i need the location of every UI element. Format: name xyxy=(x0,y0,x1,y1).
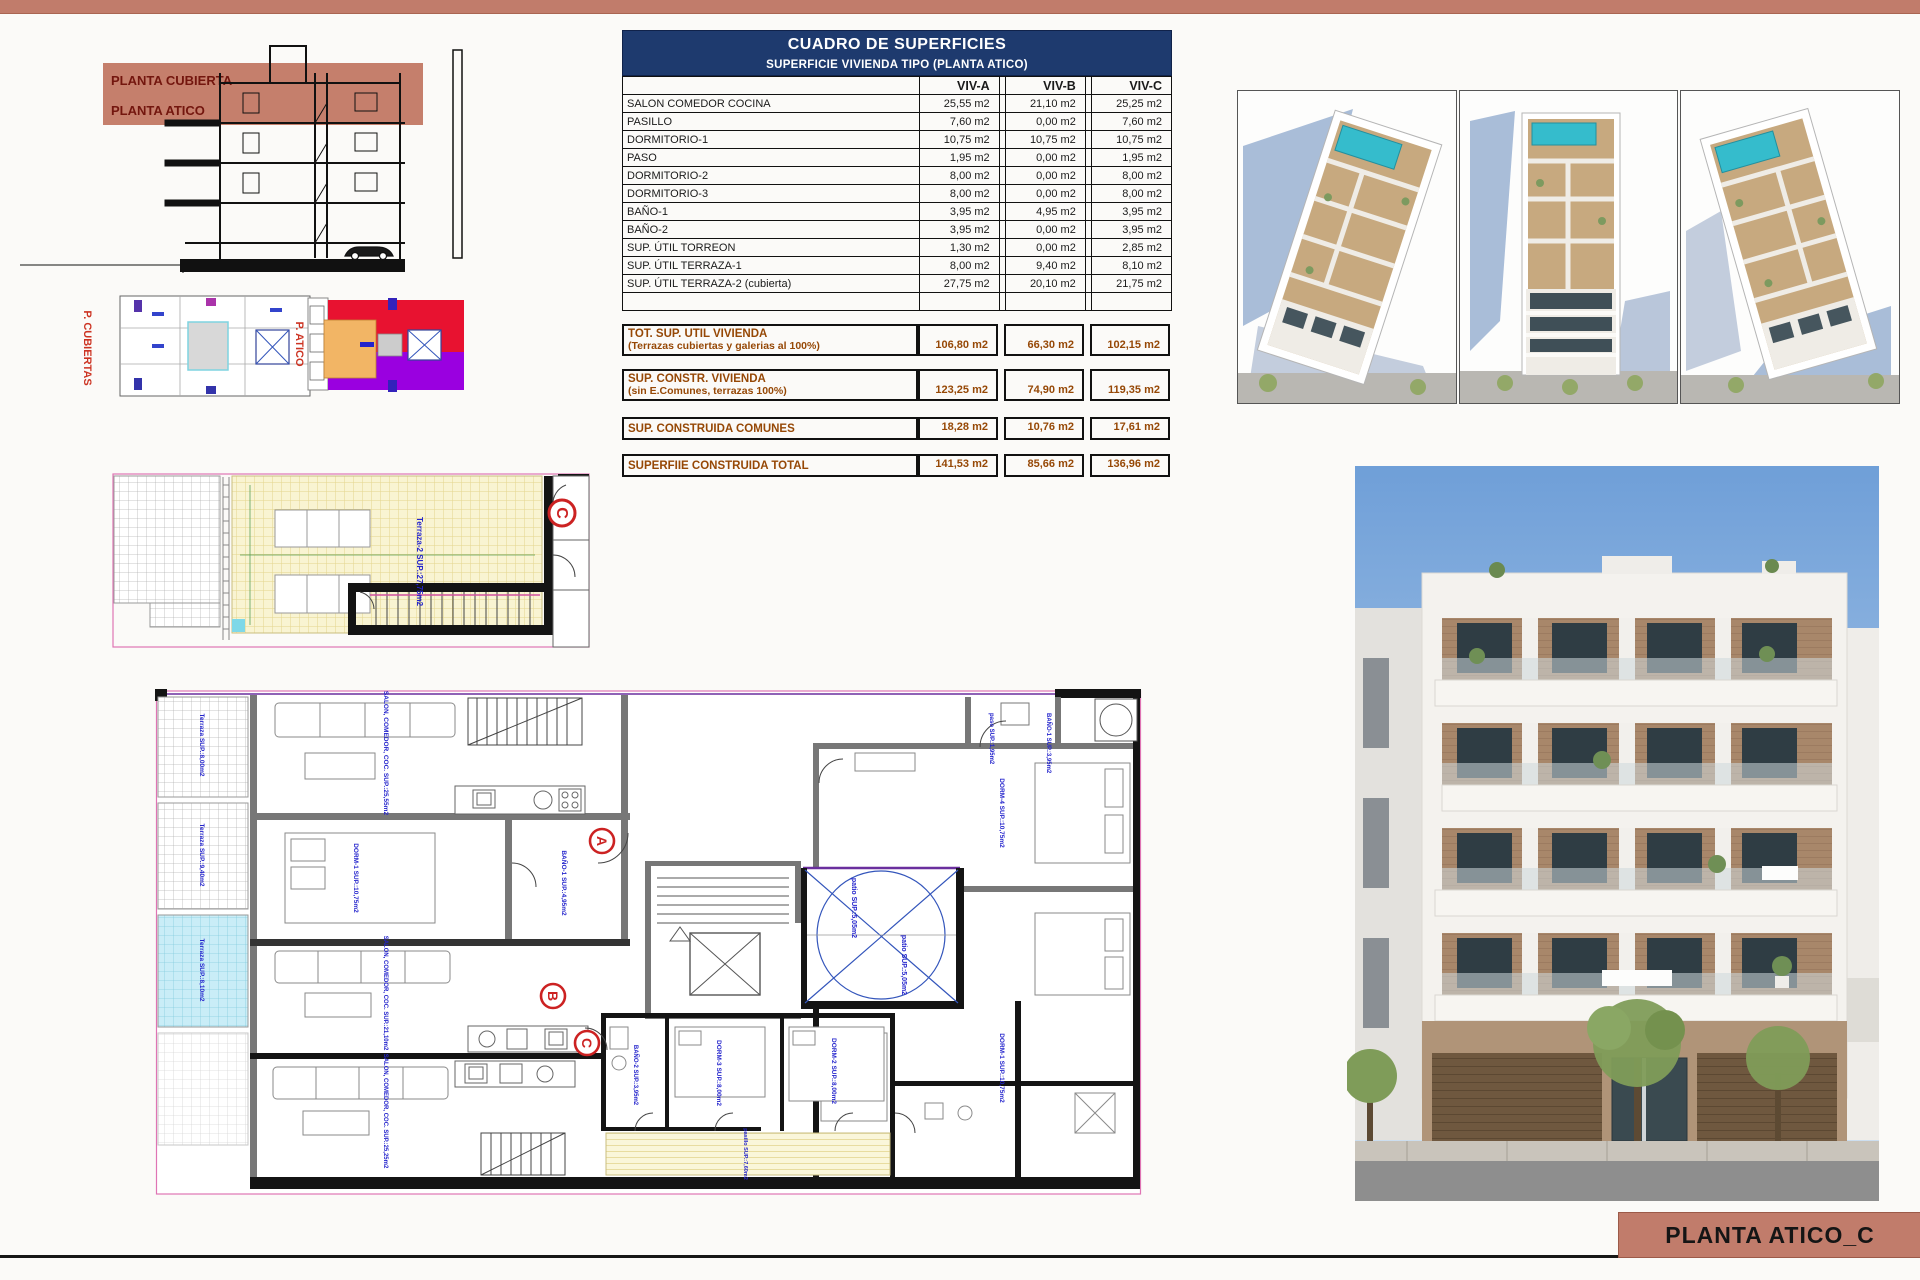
svg-text:DORM-1 SUP.:10,75m2: DORM-1 SUP.:10,75m2 xyxy=(998,1033,1005,1103)
marker-c: C xyxy=(575,1031,599,1055)
svg-text:pasillo SUP.:7,60m2: pasillo SUP.:7,60m2 xyxy=(742,1128,748,1180)
terrace-label: Terraza SUP.:9,40m2 xyxy=(198,824,205,887)
patio-label: patio SUP.:5,05m2 xyxy=(850,878,857,938)
total-row-constr: SUP. CONSTR. VIVIENDA (sin E.Comunes, te… xyxy=(622,369,1172,401)
surface-data-table: VIV-A VIV-B VIV-C SALON COMEDOR COCINA25… xyxy=(622,76,1172,311)
svg-text:B: B xyxy=(545,991,561,1001)
surface-table-subtitle: SUPERFICIE VIVIENDA TIPO (PLANTA ATICO) xyxy=(623,59,1171,71)
aerial-renders xyxy=(1237,90,1900,404)
neighbor-windows xyxy=(1363,658,1389,1028)
keyplan-right-label: P. ATICO xyxy=(293,321,305,366)
roof-gray-terrace xyxy=(114,476,220,627)
table-row: BAÑO-23,95 m20,00 m23,95 m2 xyxy=(623,221,1172,239)
total-row-total: SUPERFIIE CONSTRUIDA TOTAL 141,53 m2 85,… xyxy=(622,454,1172,477)
svg-text:DORM-4 SUP.:10,75m2: DORM-4 SUP.:10,75m2 xyxy=(998,778,1005,848)
roof-terrace-plan: C Terraza-2 SUP.:27,75m2 xyxy=(110,455,595,695)
section-label-atico: PLANTA ATICO xyxy=(111,103,205,118)
keyplan-atico xyxy=(308,298,464,392)
building-section-drawing: PLANTA CUBIERTA PLANTA ATICO xyxy=(15,28,485,293)
svg-text:C: C xyxy=(553,507,570,519)
key-plans: P. CUBIERTAS P. ATICO xyxy=(60,292,480,404)
roof-railing xyxy=(223,477,229,640)
road xyxy=(1355,1161,1879,1201)
col-viv-a: VIV-A xyxy=(919,77,999,95)
table-row: PASILLO7,60 m20,00 m27,60 m2 xyxy=(623,113,1172,131)
table-row: PASO1,95 m20,00 m21,95 m2 xyxy=(623,149,1172,167)
section-label-cubierta: PLANTA CUBIERTA xyxy=(111,73,233,88)
aerial-render-2 xyxy=(1459,90,1679,404)
table-row: BAÑO-13,95 m24,95 m23,95 m2 xyxy=(623,203,1172,221)
svg-text:A: A xyxy=(594,836,610,846)
aerial-render-1 xyxy=(1237,90,1457,404)
roof-cyan-tile xyxy=(232,619,245,632)
svg-text:DORM-3 SUP.:8,00m2: DORM-3 SUP.:8,00m2 xyxy=(715,1040,722,1106)
svg-text:BAÑO-1 SUP.:4,95m2: BAÑO-1 SUP.:4,95m2 xyxy=(560,850,569,916)
svg-text:DORM-2 SUP.:8,00m2: DORM-2 SUP.:8,00m2 xyxy=(830,1038,837,1104)
svg-text:SALON, COMEDOR, COC. SUP.:21,1: SALON, COMEDOR, COC. SUP.:21,10m2 xyxy=(382,936,388,1051)
svg-text:C: C xyxy=(579,1038,595,1048)
svg-text:paso SUP.:1,95m2: paso SUP.:1,95m2 xyxy=(988,713,994,765)
table-row: SUP. ÚTIL TERRAZA-18,00 m29,40 m28,10 m2 xyxy=(623,257,1172,275)
svg-text:SALON, COMEDOR, COC. SUP.:25,5: SALON, COMEDOR, COC. SUP.:25,55m2 xyxy=(382,691,389,816)
table-row: SALON COMEDOR COCINA25,55 m221,10 m225,2… xyxy=(623,95,1172,113)
marker-b: B xyxy=(541,984,565,1008)
surface-table-header: CUADRO DE SUPERFICIES SUPERFICIE VIVIEND… xyxy=(622,30,1172,76)
main-floor-plan: Terraza SUP.:8,00m2 Terraza SUP.:9,40m2 … xyxy=(155,683,1145,1203)
table-row: DORMITORIO-38,00 m20,00 m28,00 m2 xyxy=(623,185,1172,203)
kitchen-c xyxy=(455,1061,575,1087)
marker-a: A xyxy=(590,829,614,853)
kitchen-a xyxy=(455,786,585,814)
surface-table: CUADRO DE SUPERFICIES SUPERFICIE VIVIEND… xyxy=(622,30,1172,477)
neighbor-right xyxy=(1845,628,1879,1140)
section-ground xyxy=(180,259,405,272)
table-row: SUP. ÚTIL TORREON1,30 m20,00 m22,85 m2 xyxy=(623,239,1172,257)
patio: patio SUP.:5,05m2 patio SUP.:5,05m2 xyxy=(801,868,964,1009)
garage-door-left xyxy=(1432,1053,1602,1141)
terrace-label: Terraza SUP.:8,00m2 xyxy=(198,714,205,777)
keyplan-left-label: P. CUBIERTAS xyxy=(81,310,93,385)
plan-sheet: PLANTA CUBIERTA PLANTA ATICO xyxy=(0,0,1920,1280)
top-accent-bar xyxy=(0,0,1920,14)
table-row: DORMITORIO-28,00 m20,00 m28,00 m2 xyxy=(623,167,1172,185)
dark-walls xyxy=(250,939,630,946)
patio-label: patio SUP.:5,05m2 xyxy=(900,935,907,995)
upper-stairs xyxy=(468,698,582,745)
elevation-render xyxy=(1347,458,1887,1208)
col-viv-c: VIV-C xyxy=(1091,77,1171,95)
surface-rows: SALON COMEDOR COCINA25,55 m221,10 m225,2… xyxy=(623,95,1172,311)
svg-text:SALON, COMEDOR, COC. SUP.:25,2: SALON, COMEDOR, COC. SUP.:25,25m2 xyxy=(382,1054,388,1169)
title-block: PLANTA ATICO_C xyxy=(1618,1212,1920,1258)
total-row-comunes: SUP. CONSTRUIDA COMUNES 18,28 m2 10,76 m… xyxy=(622,417,1172,440)
svg-text:DORM-1 SUP.:10,75m2: DORM-1 SUP.:10,75m2 xyxy=(352,843,359,913)
table-row: SUP. ÚTIL TERRAZA-2 (cubierta)27,75 m220… xyxy=(623,275,1172,293)
roof-terrace-label: Terraza-2 SUP.:27,75m2 xyxy=(415,517,424,607)
left-terraces: Terraza SUP.:8,00m2 Terraza SUP.:9,40m2 … xyxy=(158,697,248,1145)
table-row xyxy=(623,293,1172,311)
roof-marker-c: C xyxy=(549,500,575,526)
col-viv-b: VIV-B xyxy=(1005,77,1085,95)
kitchen-b xyxy=(468,1026,588,1052)
lower-stairs xyxy=(481,1133,565,1175)
total-row-util: TOT. SUP. UTIL VIVIENDA (Terrazas cubier… xyxy=(622,324,1172,356)
aerial-render-3 xyxy=(1680,90,1900,404)
car-glyph xyxy=(345,247,393,260)
column-header-row: VIV-A VIV-B VIV-C xyxy=(623,77,1172,95)
terrace-label: Terraza SUP.:8,10m2 xyxy=(198,939,205,1002)
svg-text:BAÑO-1 SUP.:3,95m2: BAÑO-1 SUP.:3,95m2 xyxy=(1045,713,1052,774)
surface-table-title: CUADRO DE SUPERFICIES xyxy=(623,36,1171,54)
title-block-label: PLANTA ATICO_C xyxy=(1665,1222,1875,1249)
sidewalk xyxy=(1355,1141,1879,1161)
keyplan-cubiertas xyxy=(120,296,310,396)
svg-text:BAÑO-2 SUP.:3,95m2: BAÑO-2 SUP.:3,95m2 xyxy=(632,1045,639,1106)
table-row: DORMITORIO-110,75 m210,75 m210,75 m2 xyxy=(623,131,1172,149)
